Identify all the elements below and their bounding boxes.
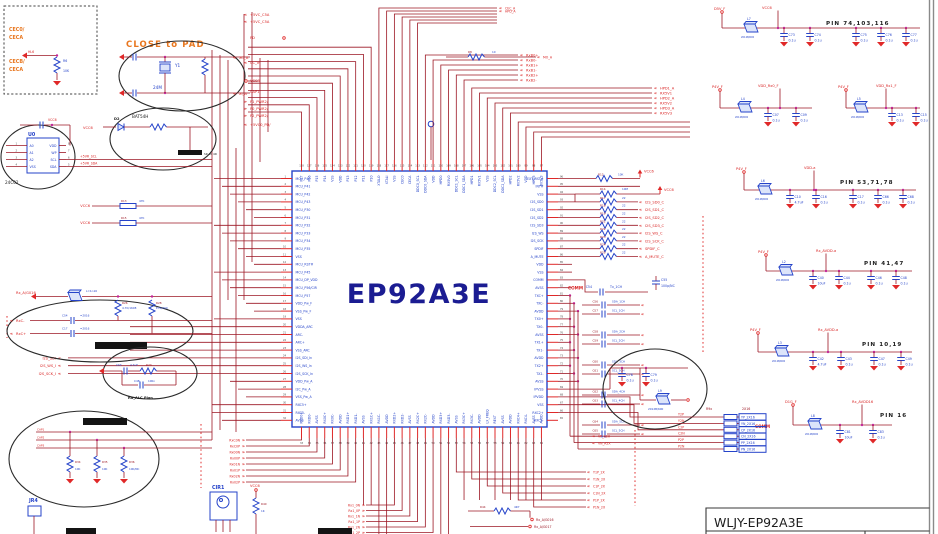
component-value: 10K	[102, 467, 108, 471]
ground-icon	[874, 204, 882, 209]
pin-number: 109	[446, 165, 451, 168]
ground-icon	[912, 122, 920, 127]
wire	[472, 88, 652, 160]
net-label: I2S_SD1_C	[645, 208, 665, 212]
ground-icon	[902, 42, 910, 47]
terminal-icon	[529, 525, 532, 528]
pin-label: RX5V2	[516, 176, 520, 187]
component-ref: C74	[815, 33, 821, 37]
pin-number: 127	[307, 165, 312, 168]
pin-label: AVSS	[535, 333, 543, 337]
component-ref: C68	[908, 195, 914, 199]
net-label: Y2P	[678, 413, 684, 417]
net-label: YN_2X16	[741, 422, 755, 426]
pin-number: 103	[493, 165, 498, 168]
net-connector-icon: «	[639, 255, 642, 260]
pin-note: PIN 16	[880, 413, 907, 419]
component-ref: R28	[156, 301, 162, 305]
pin-label: TX0-	[535, 325, 543, 329]
component-value: 4.7uF	[818, 363, 827, 367]
pin-label: VSS_Pw_A	[296, 395, 313, 399]
terminal-icon	[845, 89, 848, 92]
pin-label: SPDIF	[534, 247, 543, 251]
component-value: 0.1u	[846, 363, 853, 367]
component-ref: R21	[600, 219, 606, 223]
component-value: BAT54H	[132, 114, 148, 119]
pin-label: DDC1_SDA	[462, 175, 466, 193]
resistor-icon	[115, 300, 121, 316]
pin-label: REXT	[493, 415, 497, 423]
component-ref: R22	[600, 227, 606, 231]
pin-label: RX5V1	[478, 176, 482, 187]
pin-label: VDD	[338, 175, 342, 183]
net-label: Tx_1CH	[609, 285, 623, 289]
pin-label: MCU_P56/CIR	[296, 286, 318, 290]
pin-number: 7	[68, 150, 70, 153]
pin-number: 87	[560, 246, 564, 249]
ferrite-bead-icon	[854, 102, 867, 105]
net-label: RxB0-	[526, 59, 537, 63]
pin-number: 33	[300, 442, 304, 445]
component-ref: C75	[861, 33, 867, 37]
resistor-icon	[94, 456, 100, 472]
net-connector-icon: «	[654, 112, 657, 117]
pin-number: 3	[15, 157, 17, 160]
pin-label: AVDD	[509, 414, 513, 424]
net-label: VCC6	[664, 188, 674, 192]
pin-number: 108	[454, 165, 459, 168]
wire	[248, 83, 332, 160]
net-label: RxB2+	[526, 74, 538, 78]
pin-number: 13	[283, 269, 287, 272]
pin-label: P10	[369, 176, 373, 182]
pin-number: 75	[560, 339, 564, 342]
net-label: CAP2	[37, 436, 45, 440]
net-label: CAP1	[250, 90, 259, 94]
net-label: RX5V3	[660, 112, 672, 116]
net-label: Y1N_2X	[593, 478, 606, 482]
ground-icon	[867, 285, 875, 290]
wire	[410, 20, 497, 160]
component-ref: C59	[592, 339, 598, 343]
drawing-title: WLJY-EP92A3E	[714, 515, 804, 530]
pin-number: 22	[283, 339, 287, 342]
pin-label: MCU_P32	[296, 224, 311, 228]
pin-note: PIN 53,71,78	[840, 180, 894, 186]
component-ref: C43	[846, 357, 852, 361]
net-label: +5VR_SCL	[80, 155, 97, 159]
pin-label: P17	[300, 176, 304, 182]
pin-number: 97	[540, 165, 544, 168]
component-value: 10uF	[818, 282, 826, 286]
component-ref: L6	[761, 179, 765, 183]
component-value: 0.1u	[897, 119, 904, 123]
component-ref: C61	[592, 369, 598, 373]
net-label: R9x	[706, 407, 712, 411]
pin-number: 80	[560, 300, 564, 303]
net-label: Rx_AVDD16	[852, 400, 874, 404]
pin-label: HPD0	[439, 176, 443, 185]
pin-number: 123	[338, 165, 343, 168]
component-value: 2012B/600	[755, 198, 769, 201]
terminal-icon	[245, 80, 248, 83]
ground-icon	[53, 81, 61, 86]
pin-number: 19	[283, 316, 287, 319]
pin-label: MCU_P43	[296, 200, 311, 204]
net-label: HL6	[28, 50, 34, 54]
pin-label: AVSS	[408, 415, 412, 423]
pin-number: 65	[560, 417, 564, 420]
pin-label: A0	[30, 144, 34, 148]
pin-number: 16	[283, 292, 287, 295]
pin-label: VSS	[296, 317, 302, 321]
component-ref: R13	[121, 199, 127, 203]
wire	[402, 17, 497, 160]
net-connector-icon: «	[639, 216, 642, 221]
ground-icon	[837, 366, 845, 371]
component-value: =2016	[80, 327, 90, 331]
pin-number: 72	[560, 363, 564, 366]
component-value: 22	[622, 196, 626, 200]
component-ref: L3	[778, 341, 782, 345]
pin-label: RXC5-	[296, 411, 306, 415]
cec-label: CECB/	[9, 59, 25, 65]
net-label: I2S_SD0_C	[645, 200, 665, 204]
pin-label: RX3C-	[470, 414, 474, 424]
ground-icon	[786, 204, 794, 209]
component-value: 0.1u	[651, 379, 658, 383]
pin-label: VDDA_ARC	[296, 325, 314, 329]
pin-number: 128	[299, 165, 304, 168]
pin-number: 6	[284, 214, 286, 217]
pin-number: 18	[283, 308, 287, 311]
component-value: 0.1u	[876, 282, 883, 286]
ferrite-bead-icon	[758, 186, 772, 194]
component-value: 100p/NC	[661, 284, 676, 288]
pin-number: 91	[560, 214, 564, 217]
component-value: 24C02	[5, 180, 19, 185]
pin-number: 74	[560, 347, 564, 350]
component-ref: C55	[661, 278, 667, 282]
wire	[449, 70, 518, 160]
ferrite-bead-icon	[775, 346, 788, 349]
pin-number: 21	[283, 331, 287, 334]
pin-label: HPD1	[470, 176, 474, 185]
net-label: C2P	[678, 425, 684, 429]
terminal-icon	[792, 404, 795, 407]
net-label: SCL_5CH	[612, 429, 625, 433]
pin-number: 112	[423, 165, 428, 168]
pin-label: MCU_P33	[296, 231, 311, 235]
component-value: 22	[622, 235, 626, 239]
pin-label: I2S_SDI_In	[296, 356, 313, 360]
resistor-icon	[202, 59, 208, 75]
component-value: 4.7K/1608	[122, 306, 137, 310]
net-label: PP_2X16	[741, 441, 755, 445]
net-label: RX5V2	[660, 102, 672, 106]
component-ref: C48	[901, 276, 907, 280]
component-ref: C15	[921, 113, 927, 117]
pin-label: AVDD	[431, 414, 435, 424]
terminal-icon	[255, 489, 258, 492]
component-ref: C58	[592, 330, 598, 334]
pin-label: DDC0_SDA	[424, 175, 428, 193]
junction-dot	[825, 270, 827, 272]
component-ref: L7	[747, 17, 751, 21]
net-connector-icon: «	[58, 364, 61, 369]
pin-label: I2C_Pw_A	[296, 387, 312, 391]
component-ref: C65	[592, 429, 598, 433]
pin-label: VSS	[537, 270, 543, 274]
pin-number: 110	[439, 165, 444, 168]
component-ref: C48	[134, 379, 140, 383]
pin-number: 6	[68, 157, 70, 160]
annotation-ellipse	[119, 41, 245, 111]
pin-label: I2S_SD0	[530, 200, 543, 204]
junction-dot	[56, 54, 58, 56]
component-ref: C62	[592, 390, 598, 394]
resistor-icon	[67, 456, 73, 472]
pin-label: I2S_SD3	[530, 224, 543, 228]
component-value: 22	[622, 227, 626, 231]
component-value: 22	[622, 212, 626, 216]
pin-number: 3	[284, 191, 286, 194]
pin-label: VSS	[485, 176, 489, 182]
pin-label: P14	[323, 176, 327, 182]
pin-label: TX1-	[535, 348, 543, 352]
ground-icon	[852, 42, 860, 47]
pin-number: 126	[315, 165, 320, 168]
net-connector-icon: «	[244, 13, 247, 18]
net-label: SCL_1CH	[612, 309, 625, 313]
net-label: Y1P_2X	[593, 471, 606, 475]
pin-label: RX0C-	[331, 414, 335, 424]
ferrite-bead-icon	[854, 104, 868, 112]
component-value: 4.7uF	[795, 201, 804, 205]
ground-icon	[642, 382, 650, 387]
net-label: Rx_AVDD-a	[816, 249, 836, 253]
component-value: 10	[492, 50, 496, 54]
pin-label: ARC-	[296, 333, 304, 337]
pin-label: A2	[30, 158, 34, 162]
pin-number: 24	[283, 355, 287, 358]
component-ref: C63	[592, 399, 598, 403]
pin-label: TX1+	[534, 341, 544, 345]
net-label: VCC6	[644, 170, 654, 174]
component-value: 10K/NC	[129, 467, 139, 471]
pin-label: TX2-	[535, 372, 543, 376]
net-label: PD	[250, 36, 255, 40]
net-connector-icon: «	[641, 403, 644, 408]
pin-label: VSS	[296, 255, 302, 259]
component-ref: C42	[818, 357, 824, 361]
ferrite-bead-icon	[779, 267, 793, 275]
crystal-icon	[160, 64, 170, 71]
ground-icon	[764, 122, 772, 127]
component-value: 0.1u	[801, 119, 808, 123]
pin-label: CECA	[408, 175, 412, 184]
net-label: RxC0P	[230, 445, 240, 449]
pin-number: 119	[369, 165, 374, 168]
resistor-icon	[724, 421, 737, 426]
pin-label: P13	[346, 176, 350, 182]
pin-number: 114	[408, 165, 413, 168]
component-ref: L4	[741, 97, 745, 101]
net-label: VCC6	[80, 204, 90, 208]
pin-number: 5	[284, 207, 286, 210]
component-value: 10K	[75, 467, 81, 471]
pin-number: 32	[283, 417, 287, 420]
pin-number: 82	[560, 285, 564, 288]
net-connector-icon: »	[362, 509, 365, 514]
net-connector-icon: »	[362, 514, 365, 519]
net-label: P2N	[678, 445, 685, 449]
resistor-icon	[253, 498, 259, 514]
ir-receiver-icon	[217, 496, 229, 508]
pin-label: MCU_P31	[296, 216, 311, 220]
net-connector-icon: »	[242, 450, 245, 455]
component-ref: C76	[886, 33, 892, 37]
net-label: HPD_A	[505, 10, 516, 14]
pin-label: AVDD	[385, 414, 389, 424]
net-connector-icon: «	[641, 433, 644, 438]
pin-label: VDD_Pw_A	[296, 380, 314, 384]
net-connector-icon: «	[587, 492, 590, 497]
terminal-icon	[283, 37, 286, 40]
pin-label: AVSS	[362, 415, 366, 423]
resistor-icon	[494, 508, 511, 514]
component-value: 0.1u	[858, 201, 865, 205]
net-label: VCC6	[80, 221, 90, 225]
component-ref: C17	[62, 327, 68, 331]
net-label: P4V_F	[736, 167, 747, 171]
net-label: VDD_Rx0_F	[758, 84, 779, 88]
net-label: SCL_4CH	[612, 399, 625, 403]
ground-icon	[892, 285, 900, 290]
pin-note: PIN 41,47	[864, 261, 904, 267]
pin-label: MCU_P35	[296, 247, 311, 251]
net-label: I2S_SCK_I	[39, 372, 56, 376]
pin-label: P15	[315, 176, 319, 182]
pin-label: TXC+	[534, 294, 544, 298]
component-value: 22	[622, 243, 626, 247]
component-ref: C40	[818, 276, 824, 280]
pin-number: 29	[283, 394, 287, 397]
component-value: 10K	[618, 173, 624, 177]
pin-number: 30	[283, 402, 287, 405]
terminal-icon	[531, 518, 534, 521]
net-connector-icon: «	[244, 123, 247, 128]
net-label: VCC6	[83, 126, 93, 130]
cec-note-box	[4, 6, 97, 94]
ground-icon	[93, 479, 101, 484]
component-ref: C44	[844, 276, 850, 280]
component-ref: C77	[911, 33, 917, 37]
pin-label: HPD3	[532, 176, 536, 185]
pin-label: VSS	[30, 165, 36, 169]
redaction-bar	[66, 528, 96, 534]
vcc-arrow-icon	[638, 170, 643, 174]
net-label: Rx01P	[230, 469, 240, 473]
pin-label: RX1C-	[377, 414, 381, 424]
pin-number: 93	[560, 199, 564, 202]
ground-icon	[897, 366, 905, 371]
component-ref: L8	[811, 414, 815, 418]
net-label: A_MUTE_C	[645, 255, 664, 259]
pin-note: PIN 10,19	[862, 342, 902, 348]
component-value: 0.1u	[911, 39, 918, 43]
ground-icon	[780, 42, 788, 47]
net-connector-icon: «	[587, 478, 590, 483]
pin-label: MCU_DP_VDD	[296, 278, 319, 282]
terminal-icon	[687, 399, 690, 402]
wire	[487, 98, 652, 160]
net-connector-icon: »	[242, 474, 245, 479]
wire	[246, 438, 302, 440]
net-label: Rx00P	[230, 457, 240, 461]
net-label: RxB1-	[526, 69, 537, 73]
pin-number: 17	[283, 300, 287, 303]
pin-number: 121	[353, 165, 358, 168]
pin-number: 92	[560, 207, 564, 210]
pin-number: 101	[508, 165, 513, 168]
net-label: Rx01N	[229, 463, 240, 467]
pin-number: 73	[560, 355, 564, 358]
resistor-icon	[724, 447, 737, 452]
net-label: XO_A	[239, 56, 249, 60]
pin-label: A_MUTE	[531, 255, 544, 259]
net-label: MO_A	[543, 56, 553, 60]
component-ref: R1b	[600, 187, 606, 191]
net-label: VDD-a	[804, 166, 816, 170]
pin-label: XTALI	[385, 175, 389, 184]
pin-label: RX5V0	[447, 176, 451, 187]
resistor-icon	[120, 221, 136, 226]
net-connector-icon: »	[362, 525, 365, 530]
pin-number: 84	[560, 269, 564, 272]
pin-number: 116	[392, 165, 397, 168]
component-value: 2012B/600	[772, 360, 786, 363]
junction-dot	[827, 351, 829, 353]
pin-label: RXD2-	[400, 413, 404, 423]
pin-label: AVSS	[501, 415, 505, 423]
component-ref: R19	[600, 212, 606, 216]
annotation-ellipse	[110, 108, 216, 170]
component-ref: C17	[858, 195, 864, 199]
net-label: C1N_2X	[593, 492, 606, 496]
pin-number: 104	[485, 165, 490, 168]
ferrite-bead-icon	[68, 290, 81, 293]
ferrite-bead-icon	[68, 293, 82, 301]
pin-number: 94	[560, 191, 564, 194]
wire	[246, 438, 325, 458]
net-connector-icon: »	[242, 456, 245, 461]
net-label: P4V_F	[758, 250, 769, 254]
component-value: L=1n16	[86, 289, 97, 293]
pin-label: AVDD	[534, 356, 544, 360]
pin-number: 102	[500, 165, 505, 168]
pin-label: AVDD	[478, 414, 482, 424]
net-connector-icon: »	[362, 520, 365, 525]
ground-icon	[792, 122, 800, 127]
pin-number: 4	[284, 199, 286, 202]
net-label: P4V_F	[838, 85, 849, 89]
component-ref: C57	[592, 309, 598, 313]
net-label: I2S_WS_I	[40, 364, 56, 368]
component-ref: C10	[795, 195, 801, 199]
net-connector-icon: «	[587, 485, 590, 490]
pin-number: 81	[560, 292, 564, 295]
